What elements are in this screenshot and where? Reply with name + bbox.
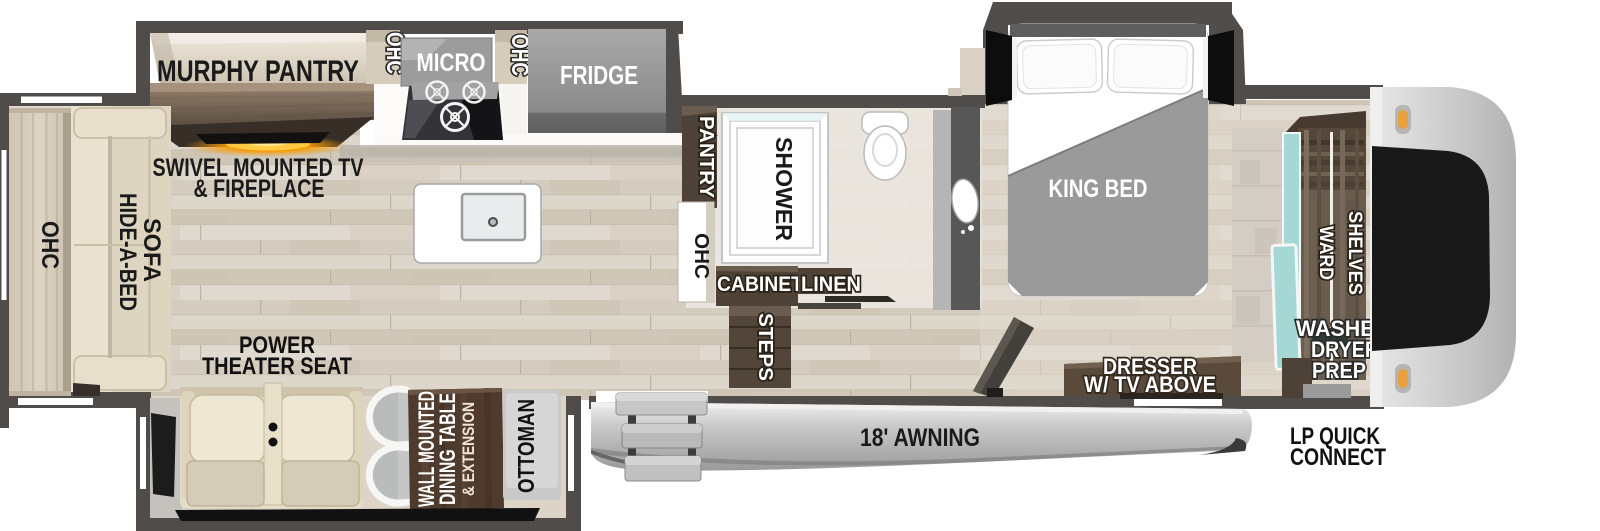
svg-text:W/ TV ABOVE: W/ TV ABOVE bbox=[1084, 372, 1216, 397]
svg-text:SHELVES: SHELVES bbox=[1344, 211, 1365, 295]
svg-text:MICRO: MICRO bbox=[417, 49, 486, 77]
svg-text:LINEN: LINEN bbox=[801, 273, 861, 296]
svg-text:PANTRY: PANTRY bbox=[695, 116, 717, 199]
svg-text:& FIREPLACE: & FIREPLACE bbox=[194, 175, 325, 203]
svg-text:FRIDGE: FRIDGE bbox=[560, 60, 638, 90]
svg-text:HIDE-A-BED: HIDE-A-BED bbox=[114, 193, 141, 311]
svg-text:SHOWER: SHOWER bbox=[771, 137, 797, 241]
svg-text:OTTOMAN: OTTOMAN bbox=[513, 399, 539, 493]
svg-text:OHC: OHC bbox=[690, 233, 712, 279]
svg-text:WARD: WARD bbox=[1315, 226, 1336, 280]
svg-text:SOFA: SOFA bbox=[138, 218, 165, 282]
svg-text:CABINET: CABINET bbox=[717, 273, 803, 296]
svg-text:DINING TABLE: DINING TABLE bbox=[435, 393, 460, 505]
svg-text:CONNECT: CONNECT bbox=[1290, 444, 1386, 471]
svg-text:& EXTENSION: & EXTENSION bbox=[459, 402, 478, 496]
svg-text:STEPS: STEPS bbox=[754, 313, 776, 381]
svg-text:OHC: OHC bbox=[36, 221, 63, 269]
svg-text:MURPHY PANTRY: MURPHY PANTRY bbox=[157, 55, 359, 88]
svg-text:KING BED: KING BED bbox=[1049, 175, 1148, 203]
svg-text:THEATER SEAT: THEATER SEAT bbox=[202, 353, 352, 380]
svg-text:18' AWNING: 18' AWNING bbox=[860, 424, 980, 452]
svg-text:PREP: PREP bbox=[1312, 358, 1366, 383]
